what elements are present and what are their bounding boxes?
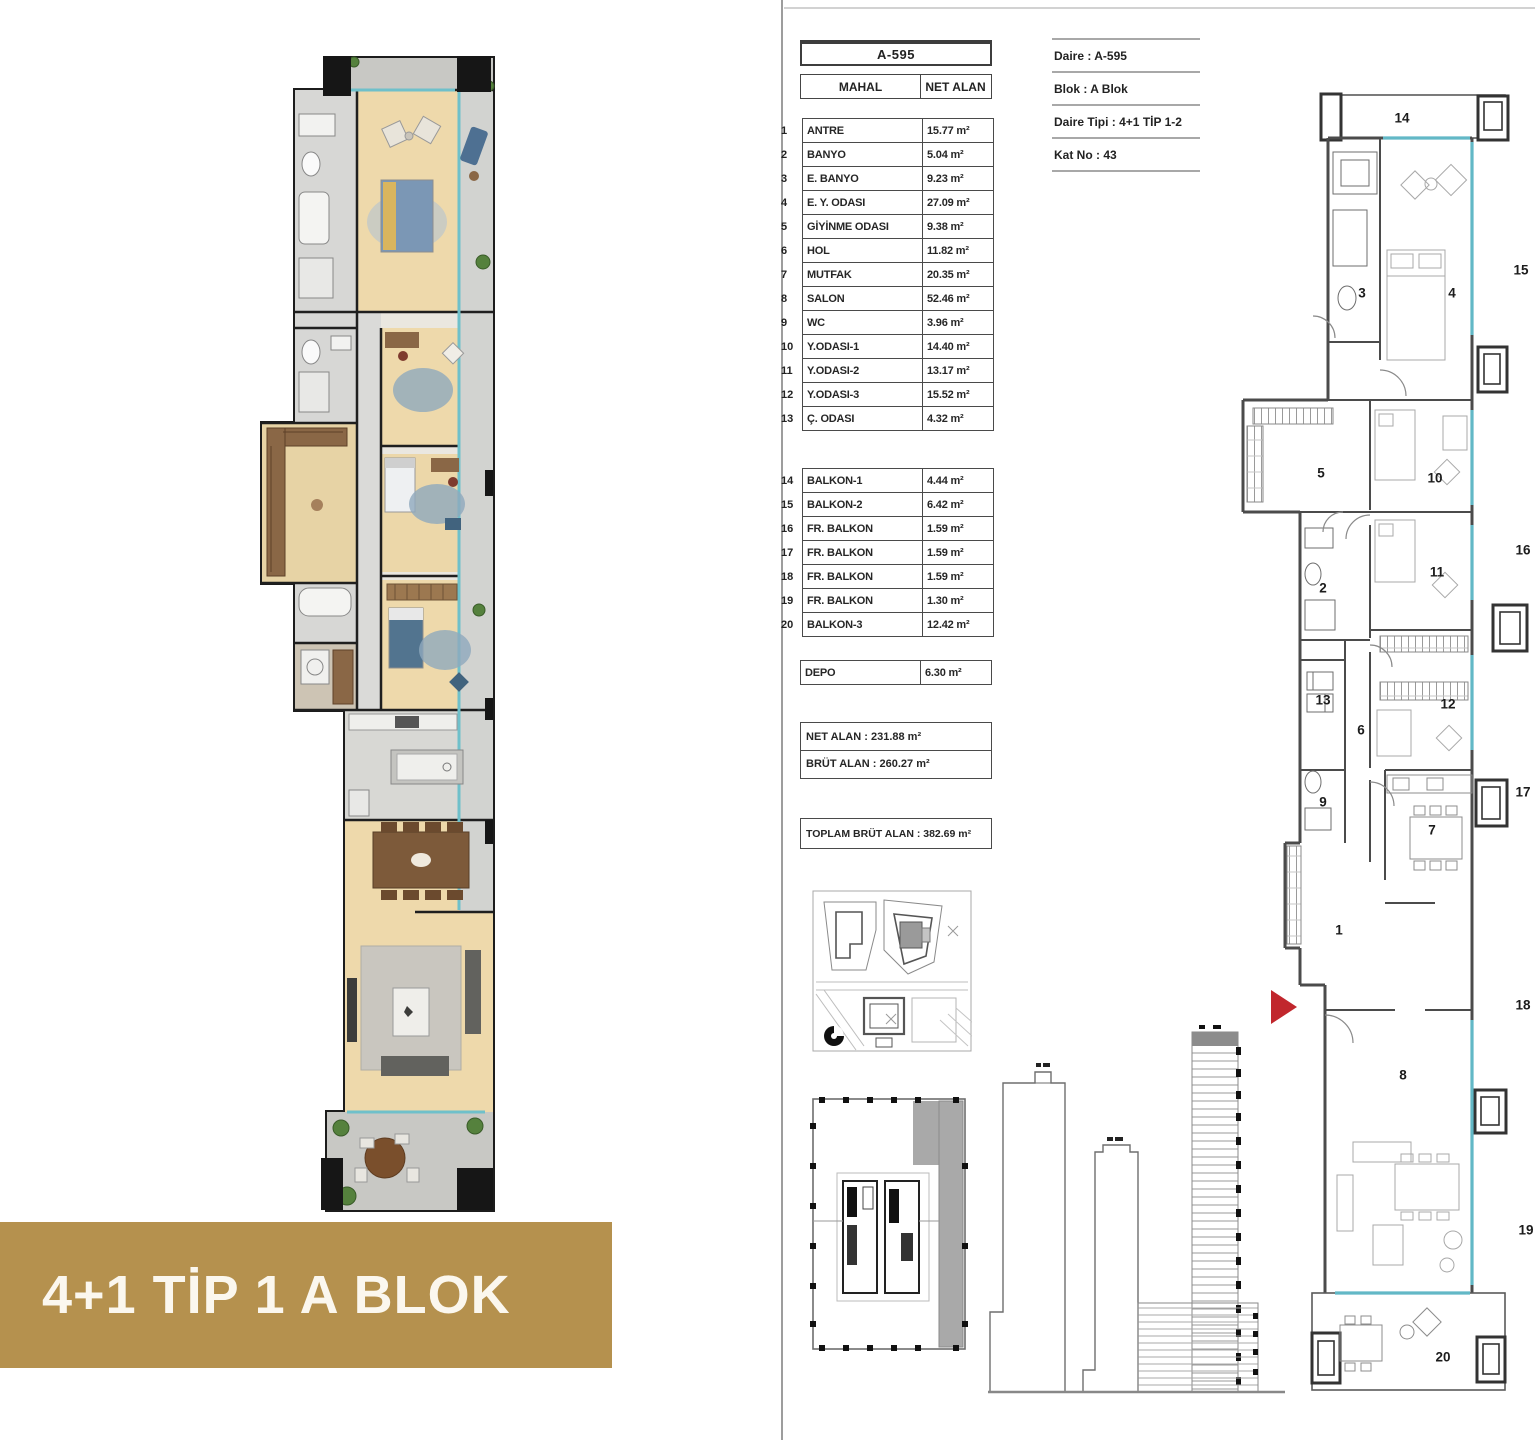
key-plan-drawing bbox=[803, 1093, 977, 1357]
unit-code: A-595 bbox=[877, 47, 915, 62]
room-number-4: 4 bbox=[1448, 286, 1456, 301]
top-hairline bbox=[784, 7, 1535, 9]
info-daire: Daire : A-595 bbox=[1052, 38, 1200, 71]
table-row: 12Y.ODASI-315.52 m² bbox=[781, 382, 994, 407]
row-number: 14 bbox=[781, 468, 802, 493]
table-row: 6HOL11.82 m² bbox=[781, 238, 994, 263]
table-row: 14BALKON-14.44 m² bbox=[781, 468, 994, 493]
room-name-cell: ANTRE bbox=[802, 118, 923, 143]
row-number: 7 bbox=[781, 262, 802, 287]
room-number-1: 1 bbox=[1335, 923, 1343, 938]
room-area-cell: 20.35 m² bbox=[922, 262, 994, 287]
room-name-cell: FR. BALKON bbox=[802, 564, 923, 589]
row-number: 2 bbox=[781, 142, 802, 167]
row-number: 9 bbox=[781, 310, 802, 335]
table-row: 11Y.ODASI-213.17 m² bbox=[781, 358, 994, 383]
table-row: 18FR. BALKON1.59 m² bbox=[781, 564, 994, 589]
room-area-cell: 4.44 m² bbox=[922, 468, 994, 493]
room-number-11: 11 bbox=[1430, 565, 1444, 580]
room-area-cell: 15.77 m² bbox=[922, 118, 994, 143]
unit-info-panel: Daire : A-595 Blok : A Blok Daire Tipi :… bbox=[1052, 38, 1200, 172]
room-name-cell: FR. BALKON bbox=[802, 588, 923, 613]
room-area-cell: 12.42 m² bbox=[922, 612, 994, 637]
room-area-cell: 1.59 m² bbox=[922, 516, 994, 541]
table-row: 17FR. BALKON1.59 m² bbox=[781, 540, 994, 565]
table-row: 9WC3.96 m² bbox=[781, 310, 994, 335]
room-area-cell: 15.52 m² bbox=[922, 382, 994, 407]
row-number: 11 bbox=[781, 358, 802, 383]
room-number-6: 6 bbox=[1357, 723, 1365, 738]
table-row: 19FR. BALKON1.30 m² bbox=[781, 588, 994, 613]
room-area-table: 1ANTRE15.77 m²2BANYO5.04 m²3E. BANYO9.23… bbox=[781, 118, 994, 431]
row-number: 12 bbox=[781, 382, 802, 407]
room-area-cell: 9.38 m² bbox=[922, 214, 994, 239]
room-area-cell: 5.04 m² bbox=[922, 142, 994, 167]
room-name-cell: BALKON-2 bbox=[802, 492, 923, 517]
row-number: 8 bbox=[781, 286, 802, 311]
row-number: 18 bbox=[781, 564, 802, 589]
room-number-13: 13 bbox=[1315, 693, 1330, 708]
room-area-cell: 4.32 m² bbox=[922, 406, 994, 431]
room-name-cell: HOL bbox=[802, 238, 923, 263]
room-number-14: 14 bbox=[1394, 111, 1409, 126]
row-number: 16 bbox=[781, 516, 802, 541]
room-area-cell: 27.09 m² bbox=[922, 190, 994, 215]
row-number: 3 bbox=[781, 166, 802, 191]
site-plan bbox=[812, 890, 972, 1052]
toplam-brut-alan-total: TOPLAM BRÜT ALAN : 382.69 m² bbox=[800, 818, 992, 849]
info-daire-tipi: Daire Tipi : 4+1 TİP 1-2 bbox=[1052, 104, 1200, 137]
room-number-2: 2 bbox=[1319, 581, 1327, 596]
floorplan-sheet: { "banner": { "text": "4+1 TİP 1 A BLOK"… bbox=[0, 0, 1535, 1440]
table-row: 5GİYİNME ODASI9.38 m² bbox=[781, 214, 994, 239]
column-header-mahal: MAHAL bbox=[800, 74, 921, 99]
room-name-cell: Y.ODASI-2 bbox=[802, 358, 923, 383]
table-row: 2BANYO5.04 m² bbox=[781, 142, 994, 167]
row-number: 13 bbox=[781, 406, 802, 431]
room-name-cell: Y.ODASI-1 bbox=[802, 334, 923, 359]
room-number-9: 9 bbox=[1319, 795, 1327, 810]
table-row: 3E. BANYO9.23 m² bbox=[781, 166, 994, 191]
table-row: 15BALKON-26.42 m² bbox=[781, 492, 994, 517]
room-area-cell: 6.42 m² bbox=[922, 492, 994, 517]
room-number-8: 8 bbox=[1399, 1068, 1407, 1083]
type-banner: 4+1 TİP 1 A BLOK bbox=[0, 1222, 612, 1368]
table-header-row: MAHAL NET ALAN bbox=[800, 74, 992, 99]
net-alan-total: NET ALAN : 231.88 m² bbox=[800, 722, 992, 751]
room-name-cell: GİYİNME ODASI bbox=[802, 214, 923, 239]
table-row: 7MUTFAK20.35 m² bbox=[781, 262, 994, 287]
row-number: 5 bbox=[781, 214, 802, 239]
room-number-20: 20 bbox=[1435, 1350, 1450, 1365]
room-name-cell: Y.ODASI-3 bbox=[802, 382, 923, 407]
table-row: 16FR. BALKON1.59 m² bbox=[781, 516, 994, 541]
room-name-cell: FR. BALKON bbox=[802, 516, 923, 541]
room-number-7: 7 bbox=[1428, 823, 1436, 838]
site-plan-drawing bbox=[812, 890, 972, 1052]
unit-code-box: A-595 bbox=[800, 40, 992, 66]
info-kat-no: Kat No : 43 bbox=[1052, 137, 1200, 172]
room-area-cell: 1.30 m² bbox=[922, 588, 994, 613]
table-row: 8SALON52.46 m² bbox=[781, 286, 994, 311]
room-area-cell: 1.59 m² bbox=[922, 540, 994, 565]
technical-floorplan: 1415345102111613612971718181920 bbox=[1195, 80, 1535, 1420]
net-brut-summary: NET ALAN : 231.88 m² BRÜT ALAN : 260.27 … bbox=[800, 722, 992, 779]
rendered-floorplan bbox=[55, 50, 505, 1220]
key-plan bbox=[803, 1093, 977, 1357]
room-number-3: 3 bbox=[1358, 286, 1366, 301]
room-name-cell: Ç. ODASI bbox=[802, 406, 923, 431]
depo-area: 6.30 m² bbox=[920, 660, 992, 685]
room-number-17: 17 bbox=[1515, 785, 1530, 800]
room-name-cell: FR. BALKON bbox=[802, 540, 923, 565]
row-number: 6 bbox=[781, 238, 802, 263]
depo-label: DEPO bbox=[800, 660, 921, 685]
row-number: 4 bbox=[781, 190, 802, 215]
room-name-cell: E. BANYO bbox=[802, 166, 923, 191]
brut-alan-total: BRÜT ALAN : 260.27 m² bbox=[800, 750, 992, 779]
row-number: 10 bbox=[781, 334, 802, 359]
room-number-18: 18 bbox=[1515, 998, 1530, 1013]
room-area-cell: 1.59 m² bbox=[922, 564, 994, 589]
room-number-15: 15 bbox=[1513, 263, 1528, 278]
rendered-floorplan-drawing bbox=[55, 50, 505, 1220]
room-name-cell: MUTFAK bbox=[802, 262, 923, 287]
room-name-cell: BANYO bbox=[802, 142, 923, 167]
room-area-cell: 3.96 m² bbox=[922, 310, 994, 335]
table-row: 10Y.ODASI-114.40 m² bbox=[781, 334, 994, 359]
room-area-cell: 9.23 m² bbox=[922, 166, 994, 191]
row-number: 17 bbox=[781, 540, 802, 565]
room-number-12: 12 bbox=[1440, 697, 1455, 712]
table-row: 1ANTRE15.77 m² bbox=[781, 118, 994, 143]
room-number-16: 16 bbox=[1515, 543, 1530, 558]
depo-row: DEPO 6.30 m² bbox=[800, 660, 992, 685]
row-number: 1 bbox=[781, 118, 802, 143]
column-header-net-alan: NET ALAN bbox=[920, 74, 992, 99]
room-area-cell: 11.82 m² bbox=[922, 238, 994, 263]
room-area-cell: 13.17 m² bbox=[922, 358, 994, 383]
room-number-10: 10 bbox=[1427, 471, 1442, 486]
room-name-cell: E. Y. ODASI bbox=[802, 190, 923, 215]
table-row: 13Ç. ODASI4.32 m² bbox=[781, 406, 994, 431]
row-number: 15 bbox=[781, 492, 802, 517]
table-row: 4E. Y. ODASI27.09 m² bbox=[781, 190, 994, 215]
row-number: 19 bbox=[781, 588, 802, 613]
info-blok: Blok : A Blok bbox=[1052, 71, 1200, 104]
room-name-cell: WC bbox=[802, 310, 923, 335]
row-number: 20 bbox=[781, 612, 802, 637]
room-area-cell: 14.40 m² bbox=[922, 334, 994, 359]
room-number-labels: 1415345102111613612971718181920 bbox=[1195, 80, 1535, 1420]
room-name-cell: BALKON-3 bbox=[802, 612, 923, 637]
room-number-5: 5 bbox=[1317, 466, 1325, 481]
table-row: 20BALKON-312.42 m² bbox=[781, 612, 994, 637]
balcony-area-table: 14BALKON-14.44 m²15BALKON-26.42 m²16FR. … bbox=[781, 468, 994, 637]
room-area-cell: 52.46 m² bbox=[922, 286, 994, 311]
type-banner-label: 4+1 TİP 1 A BLOK bbox=[42, 1264, 511, 1326]
room-name-cell: BALKON-1 bbox=[802, 468, 923, 493]
room-name-cell: SALON bbox=[802, 286, 923, 311]
room-number-19: 19 bbox=[1518, 1223, 1533, 1238]
